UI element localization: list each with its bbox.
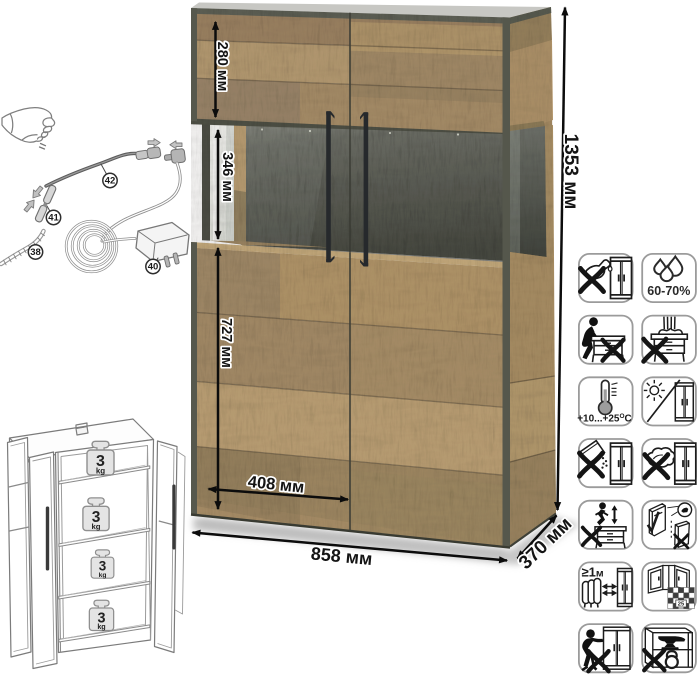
svg-text:280 мм: 280 мм <box>214 42 230 92</box>
svg-text:41: 41 <box>48 213 59 224</box>
svg-text:40: 40 <box>148 262 159 273</box>
svg-text:+10...+25OC: +10...+25OC <box>577 413 632 425</box>
svg-text:60-70%: 60-70% <box>647 284 690 298</box>
svg-text:25: 25 <box>678 602 685 608</box>
svg-text:727 мм: 727 мм <box>218 318 234 368</box>
svg-text:42: 42 <box>105 176 116 187</box>
svg-text:858 мм: 858 мм <box>310 544 373 570</box>
svg-text:1353 мм: 1353 мм <box>560 134 581 210</box>
svg-text:≥1м: ≥1м <box>582 565 604 580</box>
svg-text:38: 38 <box>30 247 41 258</box>
svg-text:346 мм: 346 мм <box>219 152 235 202</box>
